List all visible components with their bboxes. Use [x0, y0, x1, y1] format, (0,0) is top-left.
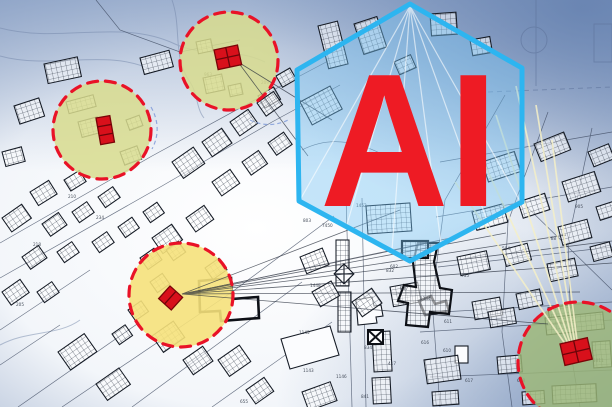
- parcel-number: 234: [96, 215, 104, 220]
- map-building: [424, 355, 461, 383]
- parcel-number: 1146: [336, 374, 347, 379]
- parcel-number: 611: [444, 319, 452, 324]
- parcel-number: 616: [421, 340, 429, 345]
- parcel-number: 417: [388, 361, 396, 366]
- building-x: [368, 330, 383, 344]
- parcel-number: 1143: [303, 368, 314, 373]
- parcel-number: 905: [575, 204, 583, 209]
- ai-label: AI: [320, 35, 498, 247]
- ai-city-map-illustration: 218 234 210 233 205 963 209 1452 7450 80…: [0, 0, 612, 407]
- map-building: [372, 377, 391, 404]
- parcel-number: 655: [240, 399, 248, 404]
- parcel-number: 210: [68, 194, 76, 199]
- parcel-number: 205: [16, 302, 24, 307]
- parcel-number: 841: [361, 394, 369, 399]
- parcel-number: 617: [465, 378, 473, 383]
- parcel-number: 834: [364, 345, 372, 350]
- parcel-number: 504: [502, 246, 510, 251]
- parcel-number: 1344: [420, 296, 431, 301]
- map-building: [338, 292, 351, 332]
- parcel-number: 218: [33, 242, 41, 247]
- map-building: [432, 390, 459, 406]
- parcel-number: 610: [443, 348, 451, 353]
- parcel-number: 837: [400, 286, 408, 291]
- parcel-number: 1145: [299, 330, 310, 335]
- parcel-number: 803: [303, 218, 311, 223]
